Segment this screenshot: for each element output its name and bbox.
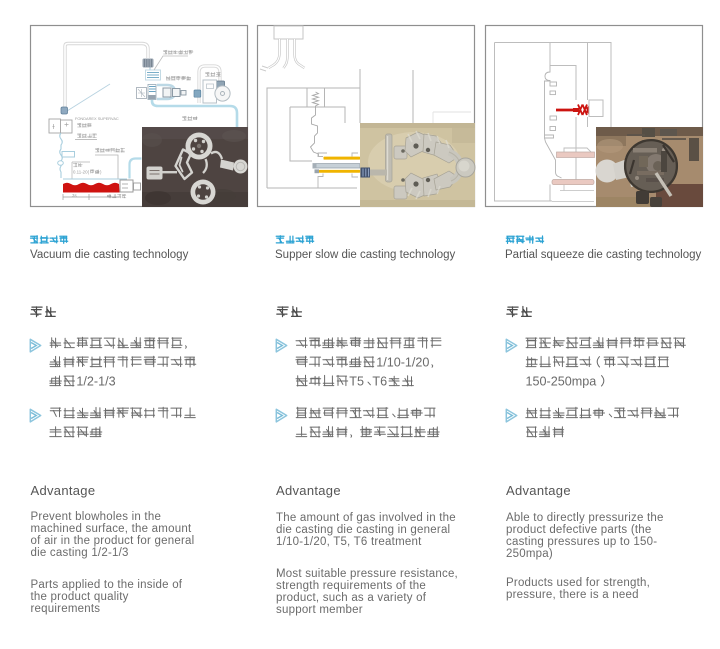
- svg-text:1/10-1/20: 1/10-1/20: [376, 356, 429, 370]
- svg-text:T5: T5: [349, 375, 364, 389]
- svg-text:1/2-1/3: 1/2-1/3: [76, 375, 115, 389]
- svg-text:0.11-20(: 0.11-20(: [73, 169, 90, 174]
- svg-text:150-250mpa: 150-250mpa: [526, 375, 597, 389]
- svg-text:FONDAREX SUPERVAC: FONDAREX SUPERVAC: [75, 116, 119, 121]
- svg-text:T6: T6: [372, 375, 387, 389]
- svg-text:3s: 3s: [72, 193, 77, 198]
